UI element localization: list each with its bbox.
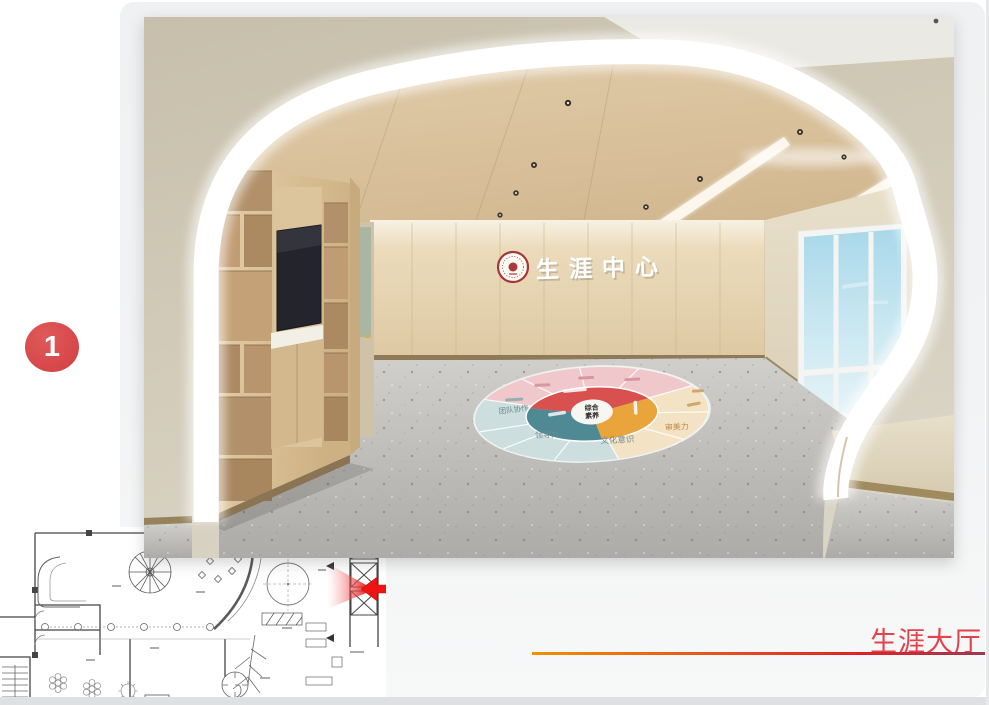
- side-corridor: [358, 222, 374, 437]
- decal-label-culture: 文化意识: [600, 434, 634, 446]
- slide-number: 1: [44, 331, 60, 364]
- decal-label-aesthetics: 审美力: [665, 421, 689, 432]
- caption-underline: [532, 652, 985, 655]
- school-seal-logo: [498, 252, 528, 282]
- decal-label-leadership: 领导力: [535, 429, 559, 440]
- plan-spiral-feature: [222, 672, 248, 698]
- shelf-unit: [210, 163, 374, 531]
- presentation-slide-view: 生涯中心 生涯中心: [0, 0, 989, 705]
- render-photo: 生涯中心 生涯中心: [144, 17, 954, 558]
- door: [360, 227, 371, 337]
- wall-sign-text: 生涯中心: [536, 253, 669, 282]
- back-wall: [370, 220, 765, 360]
- slide-number-badge: 1: [25, 322, 79, 372]
- bottom-edge-strip: [0, 697, 989, 705]
